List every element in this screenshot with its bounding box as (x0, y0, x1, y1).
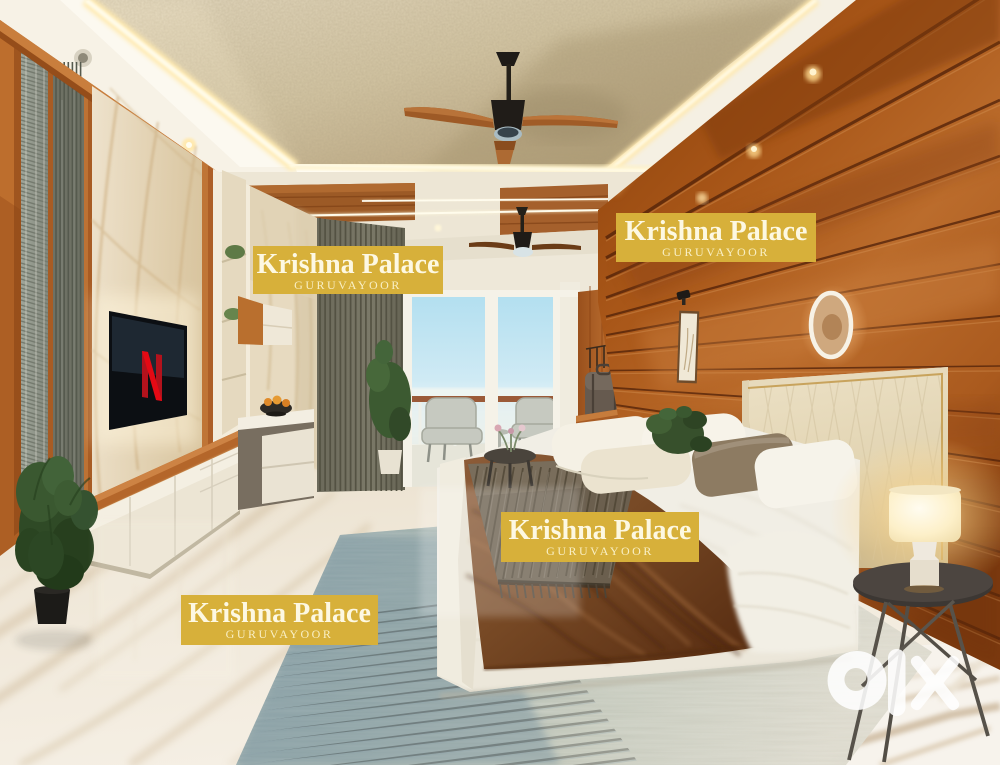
svg-text:GURUVAYOOR: GURUVAYOOR (294, 278, 402, 292)
svg-text:Krishna Palace: Krishna Palace (509, 515, 692, 546)
svg-text:GURUVAYOOR: GURUVAYOOR (226, 627, 334, 641)
svg-text:Krishna Palace: Krishna Palace (625, 216, 808, 247)
svg-text:GURUVAYOOR: GURUVAYOOR (546, 544, 654, 558)
svg-text:Krishna Palace: Krishna Palace (188, 598, 371, 629)
svg-text:GURUVAYOOR: GURUVAYOOR (662, 245, 770, 259)
svg-text:Krishna Palace: Krishna Palace (257, 249, 440, 280)
